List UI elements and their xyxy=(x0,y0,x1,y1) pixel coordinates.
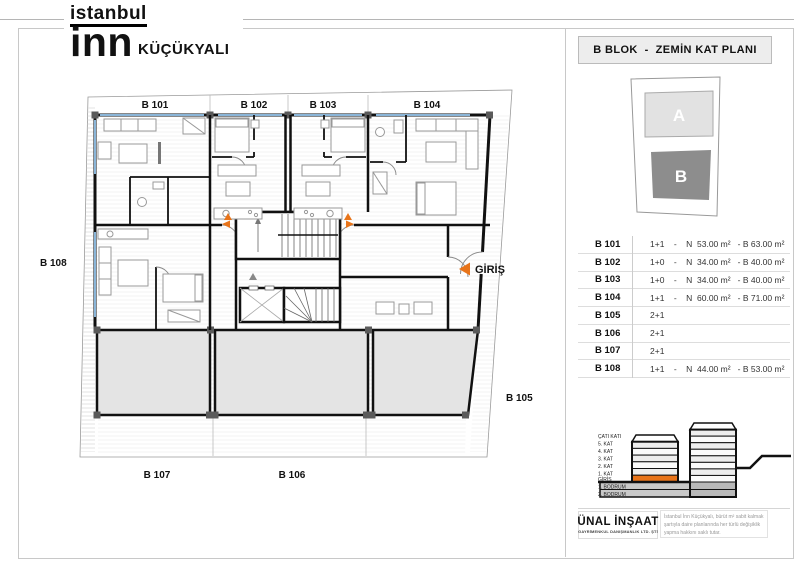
brand-inn: inn xyxy=(70,27,133,59)
site-keyplan: A B xyxy=(600,70,780,225)
unit-details: 1+0 - N 34.00 m² - B 40.00 m² xyxy=(650,275,784,285)
table-row: B 101 1+1 - N 53.00 m² - B 63.00 m² xyxy=(578,236,790,254)
unit-details: 2+1 xyxy=(650,310,664,320)
label-b101: B 101 xyxy=(142,100,169,111)
terrace-right xyxy=(373,330,478,415)
label-b103: B 103 xyxy=(310,100,337,111)
block-a-label: A xyxy=(673,106,685,125)
company-logo-box: ÜNAL İNŞAAT GAYRİMENKUL DANIŞMANLIK LTD.… xyxy=(578,511,658,539)
terraces xyxy=(97,330,478,415)
block-b-label: B xyxy=(675,167,687,186)
table-row: B 106 2+1 xyxy=(578,325,790,343)
terrace-furniture xyxy=(376,302,432,314)
table-divider xyxy=(632,236,633,378)
table-row: B 104 1+1 - N 60.00 m² - B 71.00 m² xyxy=(578,289,790,307)
floor-label: 1. BODRUM xyxy=(598,485,626,491)
disclaimer-line: yapma hakkını saklı tutar. xyxy=(664,529,764,537)
table-row: B 103 1+0 - N 34.00 m² - B 40.00 m² xyxy=(578,272,790,290)
unit-details: 2+1 xyxy=(650,328,664,338)
label-b108: B 108 xyxy=(40,258,67,269)
table-row: B 107 2+1 xyxy=(578,343,790,361)
floor-label: 2. BODRUM xyxy=(598,492,626,498)
label-b107: B 107 xyxy=(144,470,171,481)
disclaimer-line: İstanbul İnn Küçükyalı, bürüt m² sabit k… xyxy=(664,513,764,521)
floor-label: ÇATI KATI xyxy=(598,434,621,440)
floor-label: 3. KAT xyxy=(598,457,613,463)
disclaimer-line: şartıyla daire planlarında her türlü değ… xyxy=(664,521,764,529)
unit-details: 2+1 xyxy=(650,346,664,356)
unit-details: 1+0 - N 34.00 m² - B 40.00 m² xyxy=(650,257,784,267)
table-row: B 105 2+1 xyxy=(578,307,790,325)
label-b102: B 102 xyxy=(241,100,268,111)
table-row: B 108 1+1 - N 44.00 m² - B 53.00 m² xyxy=(578,360,790,378)
company-name: ÜNAL İNŞAAT xyxy=(577,516,658,528)
label-b106: B 106 xyxy=(279,470,306,481)
terrace-left xyxy=(97,330,210,415)
tower-right xyxy=(690,423,736,497)
label-giris: GİRİŞ xyxy=(475,263,505,276)
brand-logo: istanbul inn KÜÇÜKYALI xyxy=(64,4,243,61)
building-section: ÇATI KATI 5. KAT 4. KAT 3. KAT 2. KAT 1.… xyxy=(578,418,793,506)
unit-details: 1+1 - N 60.00 m² - B 71.00 m² xyxy=(650,293,784,303)
terrace-middle xyxy=(215,330,368,415)
tower-left xyxy=(632,435,678,482)
floor-label: 5. KAT xyxy=(598,442,613,448)
label-ticks xyxy=(210,95,368,114)
unit-table: B 101 1+1 - N 53.00 m² - B 63.00 m² B 10… xyxy=(578,236,790,378)
floor-label: 2. KAT xyxy=(598,464,613,470)
label-b105: B 105 xyxy=(506,393,533,404)
table-row: B 102 1+0 - N 34.00 m² - B 40.00 m² xyxy=(578,254,790,272)
floor-label: GİRİŞ xyxy=(598,476,612,483)
section-floor-labels: ÇATI KATI 5. KAT 4. KAT 3. KAT 2. KAT 1.… xyxy=(598,434,626,498)
floor-label: 4. KAT xyxy=(598,449,613,455)
label-b104: B 104 xyxy=(414,100,441,111)
unit-details: 1+1 - N 44.00 m² - B 53.00 m² xyxy=(650,364,784,374)
floor-plan: B 101 B 102 B 103 B 104 B 108 B 105 B 10… xyxy=(18,62,565,506)
company-subtitle: GAYRİMENKUL DANIŞMANLIK LTD. ŞTİ xyxy=(578,529,658,534)
sheet-title: B BLOK - ZEMİN KAT PLANI xyxy=(578,36,772,64)
footer-rule xyxy=(578,508,790,509)
sidebar-divider xyxy=(565,28,566,557)
elevator xyxy=(240,286,284,322)
unit-details: 1+1 - N 53.00 m² - B 63.00 m² xyxy=(650,239,784,249)
brand-location: KÜÇÜKYALI xyxy=(138,41,229,59)
disclaimer-box: İstanbul İnn Küçükyalı, bürüt m² sabit k… xyxy=(660,510,768,538)
